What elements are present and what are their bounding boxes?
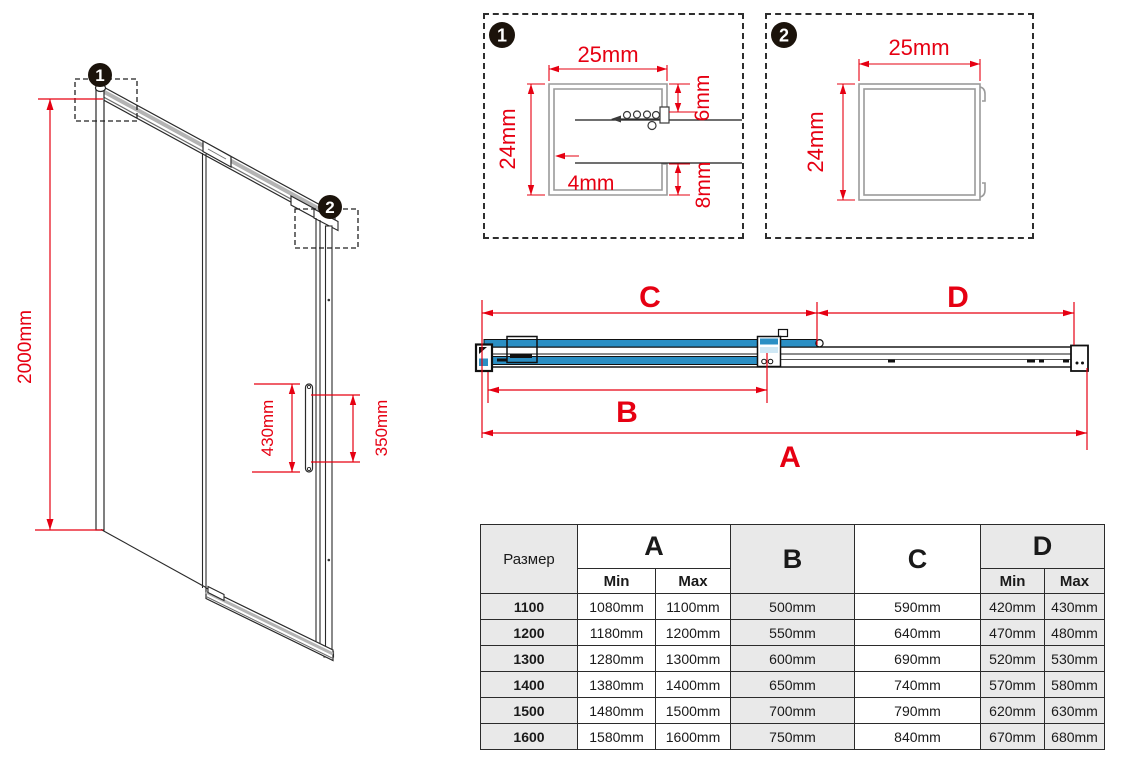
b-cell: 750mm xyxy=(731,724,855,750)
detail-2-drawing: 2 25mm 24mm xyxy=(767,15,1032,237)
d-min-cell: 420mm xyxy=(981,594,1045,620)
height-2000mm-label: 2000mm xyxy=(15,310,36,384)
c-cell: 640mm xyxy=(855,620,981,646)
door-handle xyxy=(306,384,313,472)
size-cell: 1300 xyxy=(481,646,578,672)
d-max-cell: 630mm xyxy=(1045,698,1105,724)
marker-2-number: 2 xyxy=(325,198,334,217)
size-table-container: Размер A B C D Min Max Min Max 1100 1080… xyxy=(480,524,1105,750)
d-min-cell: 620mm xyxy=(981,698,1045,724)
fixed-glass-panel xyxy=(101,153,206,589)
d-max-cell: 430mm xyxy=(1045,594,1105,620)
d-min-cell: 670mm xyxy=(981,724,1045,750)
size-table: Размер A B C D Min Max Min Max 1100 1080… xyxy=(480,524,1105,750)
table-row: 1100 1080mm 1100mm 500mm 590mm 420mm 430… xyxy=(481,594,1105,620)
c-cell: 840mm xyxy=(855,724,981,750)
d-min-cell: 570mm xyxy=(981,672,1045,698)
detail-2-24mm-label: 24mm xyxy=(803,111,828,172)
dim-d-label: D xyxy=(947,281,969,314)
table-row: 1400 1380mm 1400mm 650mm 740mm 570mm 580… xyxy=(481,672,1105,698)
detail-2-badge-number: 2 xyxy=(779,26,789,46)
roller-bracket-1 xyxy=(203,141,231,167)
detail-view-2: 2 25mm 24mm xyxy=(765,13,1034,239)
b-cell: 600mm xyxy=(731,646,855,672)
a-min-cell: 1480mm xyxy=(578,698,656,724)
detail-1-8mm-label: 8mm xyxy=(692,162,715,209)
col-b-header: B xyxy=(731,525,855,594)
size-cell: 1200 xyxy=(481,620,578,646)
detail-2-25mm-label: 25mm xyxy=(888,35,949,60)
table-row: 1200 1180mm 1200mm 550mm 640mm 470mm 480… xyxy=(481,620,1105,646)
square-profile-section xyxy=(859,84,985,200)
detail-1-25mm-label: 25mm xyxy=(577,42,638,67)
size-cell: 1400 xyxy=(481,672,578,698)
technical-drawing-page: 1 2 2000mm 430mm xyxy=(0,0,1125,776)
a-min-cell: 1380mm xyxy=(578,672,656,698)
table-row: 1600 1580mm 1600mm 750mm 840mm 670mm 680… xyxy=(481,724,1105,750)
a-min-cell: 1580mm xyxy=(578,724,656,750)
height-dimension: 2000mm xyxy=(15,99,103,530)
col-a-header: A xyxy=(578,525,731,569)
detail-view-1: 1 xyxy=(483,13,744,239)
table-row: 1500 1480mm 1500mm 700mm 790mm 620mm 630… xyxy=(481,698,1105,724)
wall-profile xyxy=(96,85,106,531)
detail-1-4mm-label: 4mm xyxy=(568,172,615,195)
b-cell: 700mm xyxy=(731,698,855,724)
b-cell: 500mm xyxy=(731,594,855,620)
sliding-door-panel xyxy=(314,209,338,657)
bottom-rail xyxy=(206,587,333,661)
glass-panel-section xyxy=(575,120,742,163)
a-max-cell: 1100mm xyxy=(656,594,731,620)
size-header-cell: Размер xyxy=(481,525,578,594)
glass-clip xyxy=(611,107,669,130)
a-min-cell: 1180mm xyxy=(578,620,656,646)
a-max-cell: 1400mm xyxy=(656,672,731,698)
a-min-cell: 1080mm xyxy=(578,594,656,620)
b-cell: 550mm xyxy=(731,620,855,646)
a-max-header: Max xyxy=(656,569,731,594)
d-max-header: Max xyxy=(1045,569,1105,594)
d-min-header: Min xyxy=(981,569,1045,594)
middle-roller-bracket-top-view xyxy=(758,330,788,367)
right-end-cap xyxy=(1071,346,1088,372)
d-min-cell: 470mm xyxy=(981,620,1045,646)
plan-view-drawing: C D B A xyxy=(460,275,1125,485)
handle-holes-dimension: 350mm xyxy=(311,395,391,462)
a-min-header: Min xyxy=(578,569,656,594)
detail-1-dimensions: 25mm 24mm 6mm 8mm xyxy=(495,42,715,208)
marker-1-number: 1 xyxy=(95,66,104,85)
size-cell: 1100 xyxy=(481,594,578,620)
d-max-cell: 530mm xyxy=(1045,646,1105,672)
detail-1-6mm-label: 6mm xyxy=(691,75,714,122)
c-cell: 740mm xyxy=(855,672,981,698)
detail-1-drawing: 1 xyxy=(485,15,742,237)
dim-c-label: C xyxy=(639,281,661,314)
b-cell: 650mm xyxy=(731,672,855,698)
plan-dimensions: C D B A xyxy=(482,281,1087,474)
c-cell: 590mm xyxy=(855,594,981,620)
a-min-cell: 1280mm xyxy=(578,646,656,672)
d-max-cell: 480mm xyxy=(1045,620,1105,646)
isometric-door-drawing: 1 2 2000mm 430mm xyxy=(0,0,460,776)
d-max-cell: 580mm xyxy=(1045,672,1105,698)
col-c-header: C xyxy=(855,525,981,594)
a-max-cell: 1500mm xyxy=(656,698,731,724)
detail-1-badge-number: 1 xyxy=(497,26,507,46)
table-row: 1300 1280mm 1300mm 600mm 690mm 520mm 530… xyxy=(481,646,1105,672)
d-max-cell: 680mm xyxy=(1045,724,1105,750)
c-cell: 790mm xyxy=(855,698,981,724)
handle-430mm-label: 430mm xyxy=(258,400,277,457)
a-max-cell: 1600mm xyxy=(656,724,731,750)
handle-350mm-label: 350mm xyxy=(372,400,391,457)
detail-1-24mm-label: 24mm xyxy=(495,108,520,169)
d-min-cell: 520mm xyxy=(981,646,1045,672)
col-d-header: D xyxy=(981,525,1105,569)
size-cell: 1600 xyxy=(481,724,578,750)
c-cell: 690mm xyxy=(855,646,981,672)
a-max-cell: 1200mm xyxy=(656,620,731,646)
handle-length-dimension: 430mm xyxy=(252,384,300,472)
a-max-cell: 1300mm xyxy=(656,646,731,672)
size-cell: 1500 xyxy=(481,698,578,724)
dim-a-label: A xyxy=(779,441,801,474)
dim-b-label: B xyxy=(616,396,638,429)
